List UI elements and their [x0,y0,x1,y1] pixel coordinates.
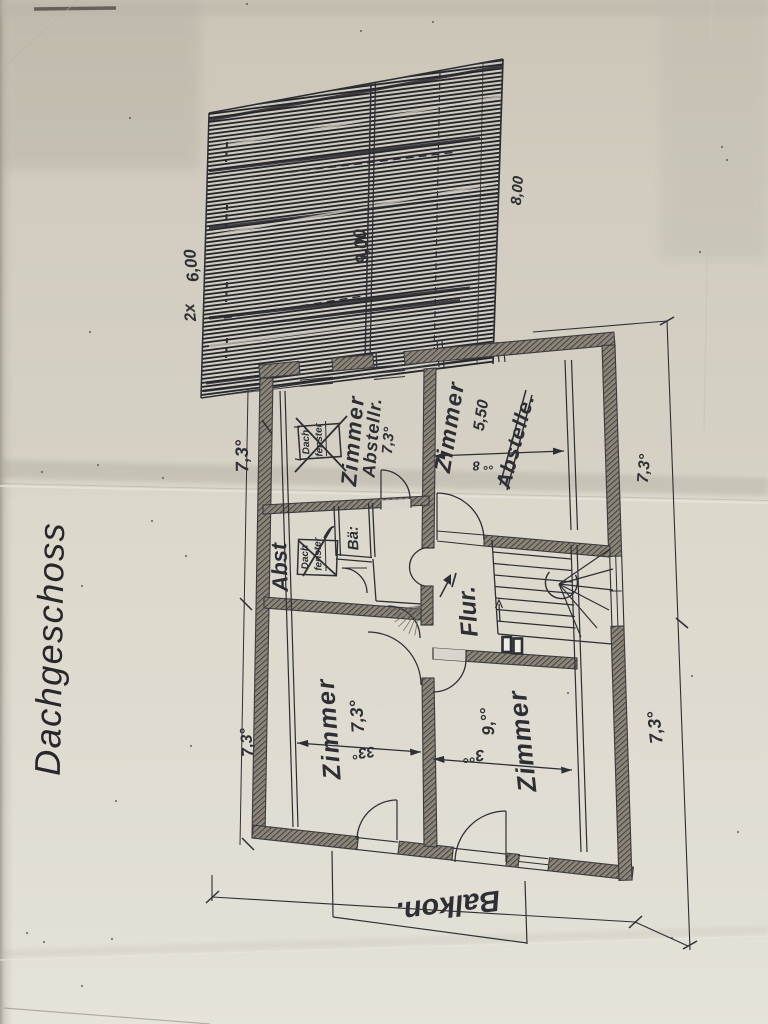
svg-text:7,3°: 7,3° [232,439,253,472]
svg-text:9,00: 9,00 [350,228,373,265]
svg-text:8,00: 8,00 [508,175,528,206]
svg-text:7,3°: 7,3° [635,453,654,484]
svg-text:fenster: fenster [313,422,325,457]
svg-text:Flur.: Flur. [453,585,483,637]
svg-text:Dachgeschoss: Dachgeschoss [27,521,72,776]
svg-text:Dach: Dach [300,545,312,570]
svg-text:7,3°: 7,3° [346,699,368,733]
svg-text:Dach: Dach [301,430,313,455]
svg-text:7,3°: 7,3° [238,727,257,758]
svg-text:7,3°: 7,3° [379,425,398,454]
svg-text:fenster: fenster [312,536,324,571]
svg-text:33°: 33° [350,743,376,763]
svg-text:°° 8: °° 8 [471,457,494,473]
svg-text:Bä:: Bä: [345,526,363,551]
svg-text:9,°°: 9,°° [477,707,499,737]
svg-text:6,00: 6,00 [180,248,203,284]
svg-text:3°°: 3°° [461,746,485,766]
svg-text:7,3°: 7,3° [643,710,666,745]
svg-text:Abst: Abst [266,541,293,593]
svg-text:2x: 2x [181,302,200,324]
